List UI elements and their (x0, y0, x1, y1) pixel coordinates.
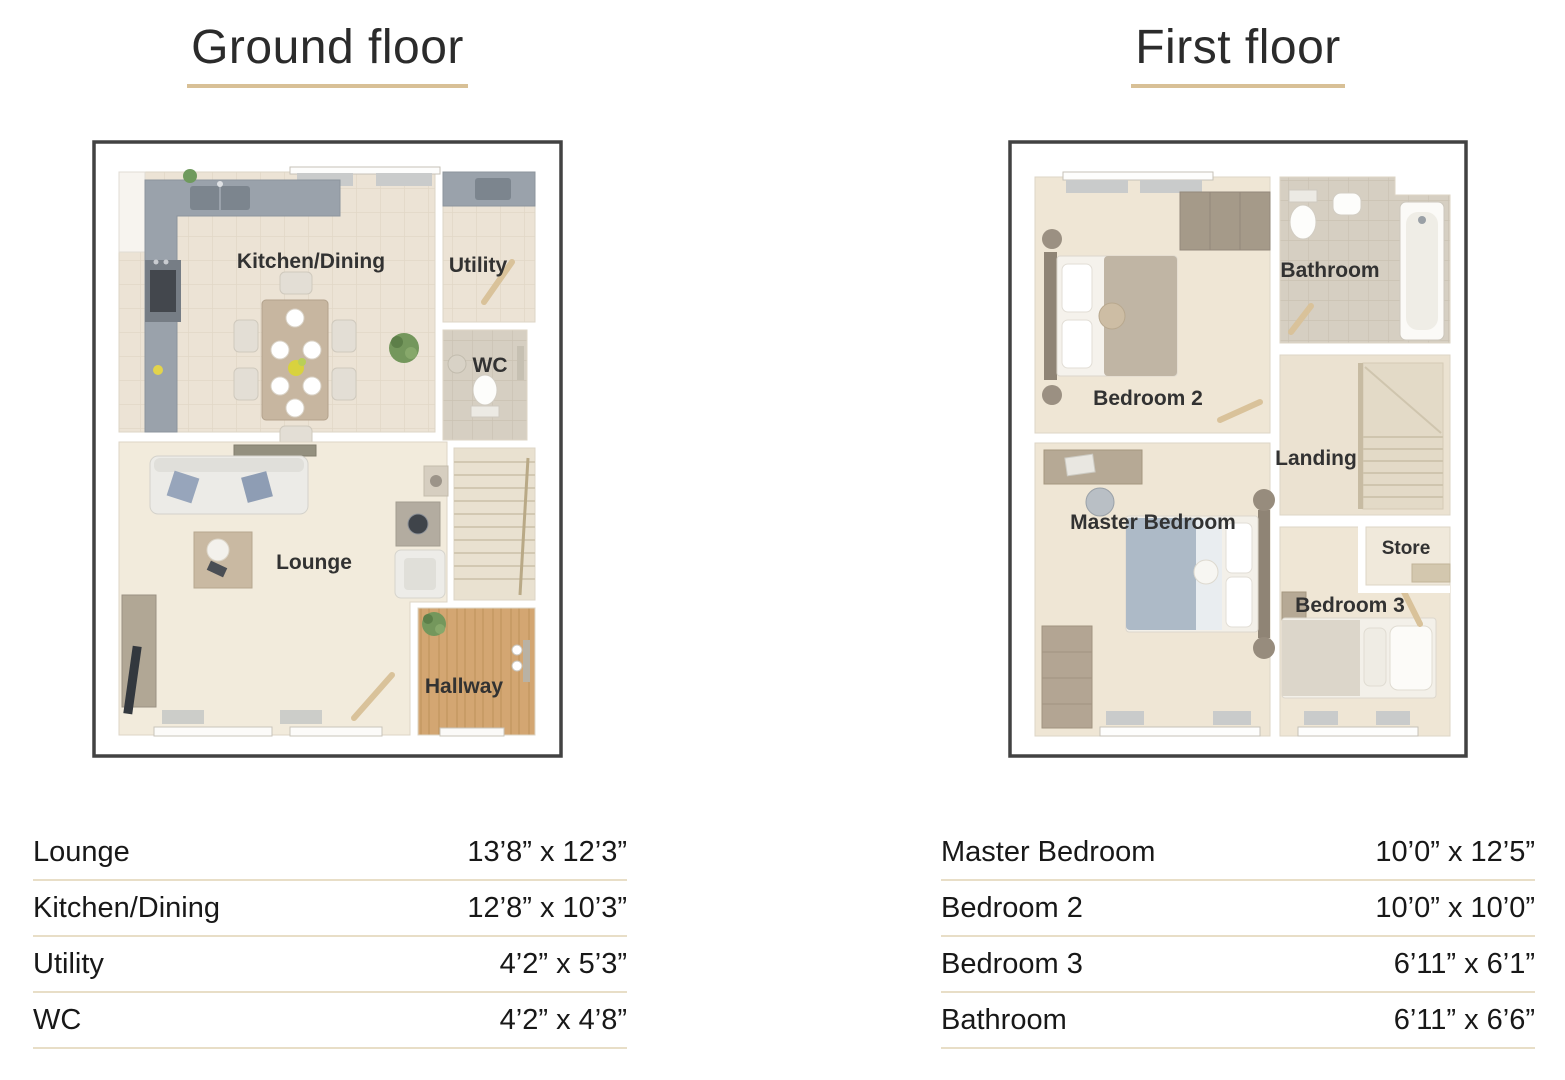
door-knob (512, 661, 522, 671)
plant-icon (183, 169, 197, 183)
curtain (162, 710, 204, 724)
room-store: Store (1358, 519, 1450, 593)
lounge-label: Lounge (276, 551, 352, 574)
room-name: Bedroom 2 (941, 892, 1083, 925)
tap (217, 181, 223, 187)
room-master-bedroom: Master Bedroom (1035, 443, 1275, 736)
landing-label: Landing (1275, 447, 1357, 470)
room-name: Utility (33, 948, 104, 981)
tv-unit-icon (122, 595, 156, 714)
room-bathroom: Bathroom (1280, 177, 1450, 343)
bedside-table-icon (1253, 489, 1275, 511)
room-name: Master Bedroom (941, 836, 1155, 869)
table-row: Bathroom 6’11” x 6’6” (941, 993, 1535, 1049)
curtain (1304, 711, 1338, 725)
room-hallway: Hallway (418, 608, 535, 736)
ground-floor-title-block: Ground floor (92, 22, 563, 88)
drawers-icon (1042, 626, 1092, 728)
coffee-table-icon (194, 532, 252, 588)
room-size: 13’8” x 12’3” (467, 836, 627, 869)
kitchen-cabinet (119, 172, 145, 252)
room-size: 6’11” x 6’1” (1394, 948, 1535, 981)
first-floor-title-block: First floor (1008, 22, 1468, 88)
curtain (1066, 180, 1128, 193)
plant-icon (422, 612, 446, 636)
armchair-cushion (404, 558, 436, 590)
bathtub-icon (1400, 202, 1444, 340)
cloth (153, 365, 163, 375)
first-floor-dimensions-table: Master Bedroom 10’0” x 12’5” Bedroom 2 1… (941, 825, 1535, 1049)
bedside-table-icon (1253, 637, 1275, 659)
bathroom-label: Bathroom (1280, 259, 1379, 282)
room-size: 12’8” x 10’3” (467, 892, 627, 925)
room-size: 4’2” x 5’3” (500, 948, 627, 981)
door-knob (512, 645, 522, 655)
wc-label: WC (473, 354, 508, 377)
desk-icon (1044, 450, 1142, 484)
table-row: Utility 4’2” x 5’3” (33, 937, 627, 993)
wardrobe-icon (1180, 192, 1270, 250)
bedroom-2-label: Bedroom 2 (1093, 387, 1203, 410)
utility-label: Utility (449, 254, 508, 277)
store-label: Store (1382, 538, 1431, 559)
utility-sink (475, 178, 511, 200)
curtain (1106, 711, 1144, 725)
bedroom-3-label: Bedroom 3 (1295, 594, 1405, 617)
radiator-icon (517, 346, 524, 380)
master-bedroom-label: Master Bedroom (1070, 511, 1236, 534)
stairs (1358, 363, 1443, 509)
bed-icon (1044, 252, 1177, 380)
shelf-icon (1412, 564, 1450, 582)
first-floor-plan: Bedroom 2 Bathroom Landing (1008, 140, 1468, 758)
curtain (280, 710, 322, 724)
ground-floor-plan: Kitchen/Dining Utility WC (92, 140, 563, 758)
room-kitchen-dining: Kitchen/Dining (119, 167, 440, 446)
sideboard-icon (234, 445, 316, 456)
room-size: 10’0” x 10’0” (1375, 892, 1535, 925)
curtain (376, 173, 432, 186)
curtain (1213, 711, 1251, 725)
window (154, 727, 272, 736)
ground-floor-title: Ground floor (187, 22, 468, 88)
room-size: 6’11” x 6’6” (1394, 1004, 1535, 1037)
kitchen-dining-label: Kitchen/Dining (237, 250, 385, 273)
bedside-table-icon (1042, 385, 1062, 405)
toilet-icon (1289, 190, 1317, 239)
table-row: Bedroom 3 6’11” x 6’1” (941, 937, 1535, 993)
window (1298, 727, 1418, 736)
window (290, 167, 440, 174)
table-row: Bedroom 2 10’0” x 10’0” (941, 881, 1535, 937)
room-name: Kitchen/Dining (33, 892, 220, 925)
toilet-icon (471, 375, 499, 417)
room-utility: Utility (443, 172, 535, 322)
room-size: 10’0” x 12’5” (1375, 836, 1535, 869)
balustrade (1358, 363, 1363, 509)
first-floor-title: First floor (1131, 22, 1345, 88)
room-name: Bedroom 3 (941, 948, 1083, 981)
room-landing: Landing (1275, 355, 1450, 515)
window (290, 727, 382, 736)
basin-icon (448, 355, 466, 373)
table-row: Master Bedroom 10’0” x 12’5” (941, 825, 1535, 881)
bed-icon (1282, 618, 1436, 698)
room-lounge: Lounge (119, 442, 448, 736)
bedside-table-icon (1042, 229, 1062, 249)
hallway-label: Hallway (425, 675, 504, 698)
table-row: Kitchen/Dining 12’8” x 10’3” (33, 881, 627, 937)
sofa-icon (150, 456, 308, 514)
room-name: Bathroom (941, 1004, 1067, 1037)
stairs (454, 448, 535, 600)
plant-icon (389, 333, 419, 363)
room-bedroom-2: Bedroom 2 (1035, 172, 1270, 433)
room-name: WC (33, 1004, 81, 1037)
room-size: 4’2” x 4’8” (500, 1004, 627, 1037)
front-door (440, 728, 504, 736)
basin-icon (1333, 193, 1361, 215)
window (1100, 727, 1260, 736)
lamp-table-icon (424, 466, 448, 496)
radiator-icon (523, 640, 530, 682)
room-wc: WC (443, 330, 527, 440)
media-unit-icon (396, 502, 440, 546)
table-row: WC 4’2” x 4’8” (33, 993, 627, 1049)
room-name: Lounge (33, 836, 130, 869)
curtain (1376, 711, 1410, 725)
ground-floor-dimensions-table: Lounge 13’8” x 12’3” Kitchen/Dining 12’8… (33, 825, 627, 1049)
window (1063, 172, 1213, 180)
table-row: Lounge 13’8” x 12’3” (33, 825, 627, 881)
curtain (1140, 180, 1202, 193)
